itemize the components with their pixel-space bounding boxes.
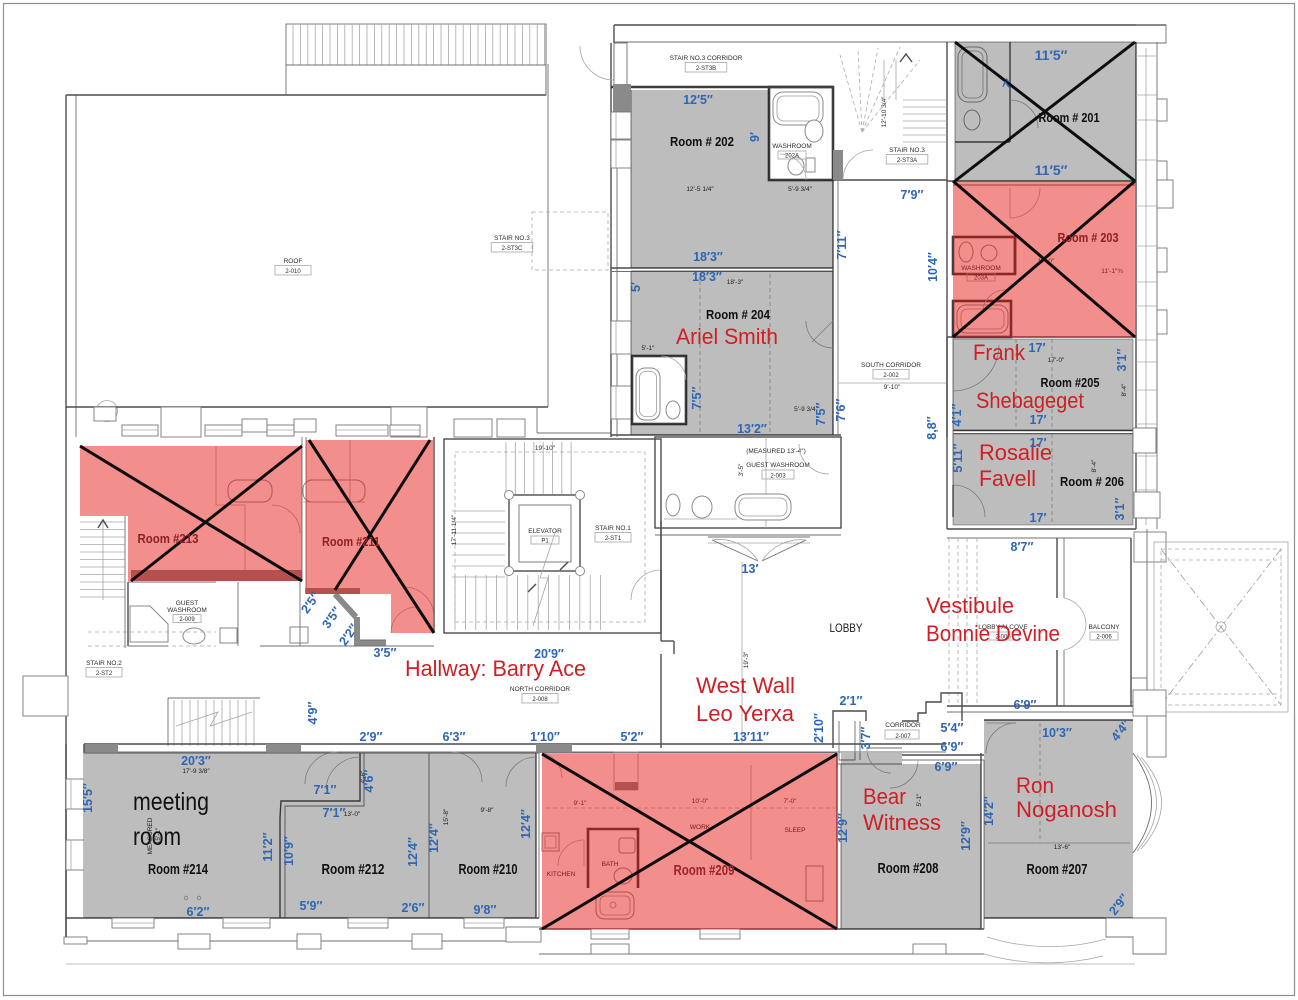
svg-text:6′9″: 6′9″: [1014, 698, 1037, 712]
svg-text:5′9″: 5′9″: [300, 899, 323, 913]
svg-text:11′5″: 11′5″: [1035, 162, 1068, 178]
svg-text:Room #209: Room #209: [674, 863, 735, 879]
svg-text:6′9″: 6′9″: [935, 760, 958, 774]
svg-text:18′3″: 18′3″: [692, 270, 722, 284]
svg-text:2-ST3C: 2-ST3C: [502, 246, 523, 252]
svg-text:7′6″: 7′6″: [834, 399, 848, 422]
svg-text:Witness: Witness: [863, 810, 941, 835]
svg-text:8′7″: 8′7″: [1011, 540, 1034, 554]
svg-text:17′: 17′: [1030, 511, 1047, 525]
svg-text:Room # 206: Room # 206: [1060, 474, 1124, 489]
svg-text:2-003: 2-003: [770, 474, 786, 480]
svg-text:2-008: 2-008: [532, 697, 548, 703]
svg-text:4′1″: 4′1″: [950, 404, 964, 427]
svg-text:5′: 5′: [629, 282, 643, 292]
svg-text:17′: 17′: [1029, 341, 1046, 355]
svg-text:West Wall: West Wall: [696, 673, 795, 698]
svg-text:11′5″: 11′5″: [1035, 47, 1068, 63]
svg-text:Room #211: Room #211: [322, 534, 380, 549]
svg-text:12′4″: 12′4″: [519, 809, 533, 839]
svg-text:Vestibule: Vestibule: [926, 593, 1014, 618]
svg-text:2′9″: 2′9″: [360, 730, 383, 744]
svg-text:STAIR NO.3: STAIR NO.3: [494, 235, 530, 242]
svg-text:17′-11 1/4″: 17′-11 1/4″: [451, 514, 458, 545]
svg-text:2′6″: 2′6″: [402, 901, 425, 915]
svg-text:2-009: 2-009: [179, 617, 195, 623]
svg-text:WASHROOM: WASHROOM: [167, 607, 206, 614]
svg-text:20′9″: 20′9″: [534, 647, 564, 661]
svg-text:WASHROOM: WASHROOM: [772, 143, 811, 150]
svg-text:12′5″: 12′5″: [683, 93, 713, 107]
svg-text:Room #207: Room #207: [1027, 862, 1088, 878]
svg-text:(MEASURED 13′-4″): (MEASURED 13′-4″): [746, 448, 806, 455]
svg-text:6′2″: 6′2″: [187, 905, 210, 919]
svg-text:6′9″: 6′9″: [941, 740, 964, 754]
svg-text:Ron: Ron: [1016, 773, 1054, 798]
svg-text:2-010: 2-010: [285, 269, 301, 275]
svg-text:13′: 13′: [742, 562, 759, 576]
svg-text:5′11″: 5′11″: [951, 443, 965, 472]
svg-text:10′4″: 10′4″: [926, 252, 940, 282]
svg-text:room: room: [133, 823, 181, 851]
svg-text:14′2″: 14′2″: [982, 796, 996, 826]
svg-text:4′6″: 4′6″: [362, 770, 376, 793]
svg-text:Frank: Frank: [973, 340, 1026, 365]
svg-text:12′9″: 12′9″: [959, 821, 973, 851]
svg-text:3′1″: 3′1″: [1113, 498, 1127, 521]
svg-text:7′9″: 7′9″: [901, 188, 924, 202]
svg-text:CORRIDOR: CORRIDOR: [885, 722, 921, 729]
svg-text:Room # 204: Room # 204: [706, 307, 771, 322]
svg-text:STAIR NO.2: STAIR NO.2: [86, 660, 122, 667]
svg-text:19′-10″: 19′-10″: [535, 445, 556, 452]
svg-text:13′2″: 13′2″: [737, 422, 767, 436]
svg-text:ELEVATOR: ELEVATOR: [528, 528, 562, 535]
svg-text:9′-10″: 9′-10″: [884, 384, 901, 391]
svg-text:2-007: 2-007: [895, 734, 911, 740]
svg-text:STAIR NO.1: STAIR NO.1: [595, 525, 631, 532]
svg-text:15′5″: 15′5″: [81, 783, 95, 813]
svg-text:12′9″: 12′9″: [836, 813, 850, 843]
svg-text:2-ST3B: 2-ST3B: [696, 66, 716, 72]
svg-text:12′-10 3/4″: 12′-10 3/4″: [881, 96, 888, 128]
svg-text:Room #210: Room #210: [459, 862, 518, 878]
svg-text:P1: P1: [541, 539, 549, 545]
svg-text:STAIR NO.3: STAIR NO.3: [889, 147, 925, 154]
svg-text:2′1″: 2′1″: [840, 694, 863, 708]
svg-text:17′: 17′: [1030, 413, 1047, 427]
svg-text:GUEST WASHROOM: GUEST WASHROOM: [746, 462, 810, 469]
svg-text:5′2″: 5′2″: [621, 730, 644, 744]
svg-text:20′3″: 20′3″: [181, 754, 211, 768]
svg-text:Room #214: Room #214: [148, 862, 208, 878]
svg-text:Room # 203: Room # 203: [1058, 230, 1119, 245]
svg-text:9′8″: 9′8″: [474, 903, 497, 917]
svg-text:9′: 9′: [748, 132, 762, 142]
svg-text:GUEST: GUEST: [176, 600, 198, 607]
svg-text:10′3″: 10′3″: [1042, 726, 1072, 740]
svg-text:LOBBY: LOBBY: [830, 621, 863, 635]
svg-text:Noganosh: Noganosh: [1016, 797, 1117, 822]
svg-text:3′-5″: 3′-5″: [738, 463, 745, 477]
svg-text:8,8″: 8,8″: [925, 416, 939, 439]
svg-text:17′: 17′: [1030, 436, 1047, 450]
svg-text:18′3″: 18′3″: [693, 250, 723, 264]
svg-text:Leo Yerxa: Leo Yerxa: [696, 701, 795, 726]
svg-text:Bear: Bear: [863, 784, 906, 809]
svg-text:12′4″: 12′4″: [406, 837, 420, 867]
svg-text:3′1″: 3′1″: [1115, 349, 1129, 372]
svg-text:BALCONY: BALCONY: [1088, 624, 1120, 631]
svg-text:NORTH CORRIDOR: NORTH CORRIDOR: [510, 686, 570, 693]
svg-text:2-006: 2-006: [1096, 635, 1112, 641]
svg-text:1′10″: 1′10″: [530, 730, 560, 744]
svg-text:10′9″: 10′9″: [282, 836, 296, 866]
svg-text:Bonnie Devine: Bonnie Devine: [926, 621, 1060, 646]
svg-text:Room #213: Room #213: [138, 531, 199, 546]
svg-text:Shebageget: Shebageget: [976, 388, 1084, 413]
svg-text:Room #208: Room #208: [878, 861, 939, 877]
svg-text:5′4″: 5′4″: [941, 721, 964, 735]
svg-text:2-002: 2-002: [883, 373, 899, 379]
svg-text:Room # 202: Room # 202: [670, 134, 734, 149]
svg-text:7′11″: 7′11″: [835, 230, 849, 259]
svg-text:SOUTH CORRIDOR: SOUTH CORRIDOR: [861, 362, 921, 369]
svg-text:11′2″: 11′2″: [261, 832, 275, 861]
svg-text:2-ST2: 2-ST2: [96, 671, 113, 677]
svg-text:Room # 201: Room # 201: [1039, 110, 1100, 125]
svg-text:7′1″: 7′1″: [314, 783, 337, 797]
svg-text:7′1″: 7′1″: [323, 806, 346, 820]
svg-text:3′7″: 3′7″: [859, 727, 873, 750]
svg-text:2-ST1: 2-ST1: [605, 536, 622, 542]
svg-text:12′4″: 12′4″: [427, 823, 441, 853]
svg-text:6′3″: 6′3″: [443, 730, 466, 744]
svg-text:meeting: meeting: [133, 788, 209, 816]
svg-text:7′5″: 7′5″: [690, 387, 704, 410]
svg-text:2-ST3A: 2-ST3A: [897, 158, 917, 164]
svg-text:STAIR NO.3 CORRIDOR: STAIR NO.3 CORRIDOR: [670, 55, 743, 62]
svg-text:7′5″: 7′5″: [814, 403, 828, 426]
svg-text:3′5″: 3′5″: [374, 646, 397, 660]
svg-text:Room #212: Room #212: [322, 862, 385, 878]
svg-text:Favell: Favell: [979, 466, 1036, 491]
svg-text:13′11″: 13′11″: [733, 730, 769, 744]
svg-text:4′9″: 4′9″: [306, 702, 320, 725]
svg-text:19′-3″: 19′-3″: [743, 651, 750, 668]
svg-text:ROOF: ROOF: [284, 258, 303, 265]
svg-text:Ariel Smith: Ariel Smith: [676, 324, 778, 349]
svg-text:2′10″: 2′10″: [812, 713, 826, 743]
